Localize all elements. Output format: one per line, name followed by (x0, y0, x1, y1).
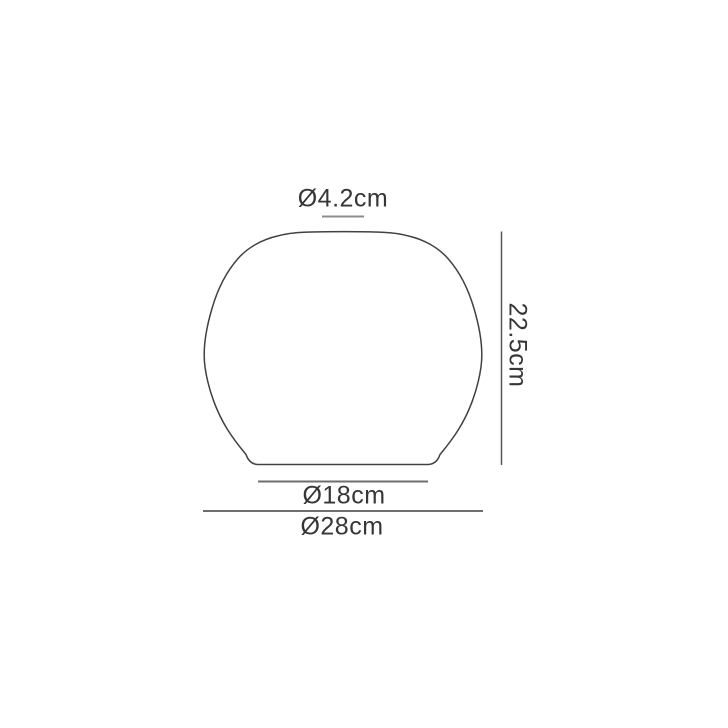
outer-diameter-label: Ø28cm (300, 515, 383, 540)
lampshade-outline-drawing (0, 0, 728, 728)
dimension-diagram: Ø4.2cm 22.5cm Ø18cm Ø28cm (0, 0, 728, 728)
lampshade-outline (204, 232, 482, 465)
height-label: 22.5cm (505, 303, 530, 388)
top-diameter-label: Ø4.2cm (298, 187, 389, 212)
inner-diameter-label: Ø18cm (302, 484, 385, 509)
